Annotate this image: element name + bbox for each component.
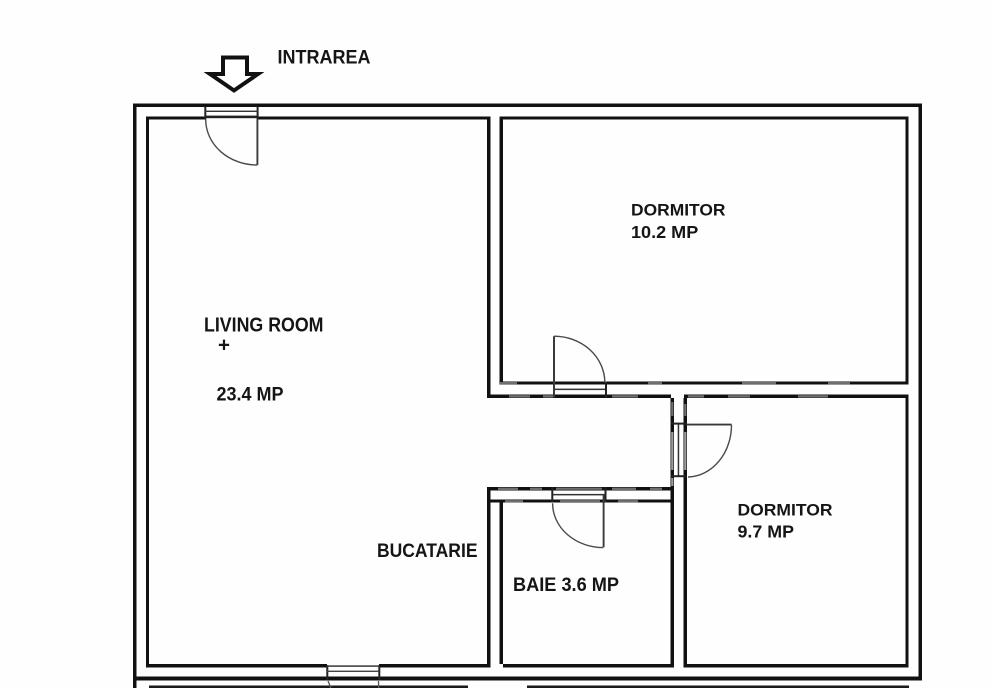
- svg-text:23.4 MP: 23.4 MP: [217, 383, 284, 405]
- svg-text:10.2 MP: 10.2 MP: [631, 222, 699, 242]
- svg-text:9.7 MP: 9.7 MP: [738, 522, 795, 542]
- svg-text:INTRAREA: INTRAREA: [278, 46, 371, 68]
- svg-text:DORMITOR: DORMITOR: [738, 500, 833, 519]
- svg-text:+: +: [218, 334, 230, 357]
- svg-text:BUCATARIE: BUCATARIE: [377, 540, 478, 562]
- svg-text:DORMITOR: DORMITOR: [631, 201, 726, 220]
- svg-text:BAIE 3.6 MP: BAIE 3.6 MP: [513, 574, 619, 596]
